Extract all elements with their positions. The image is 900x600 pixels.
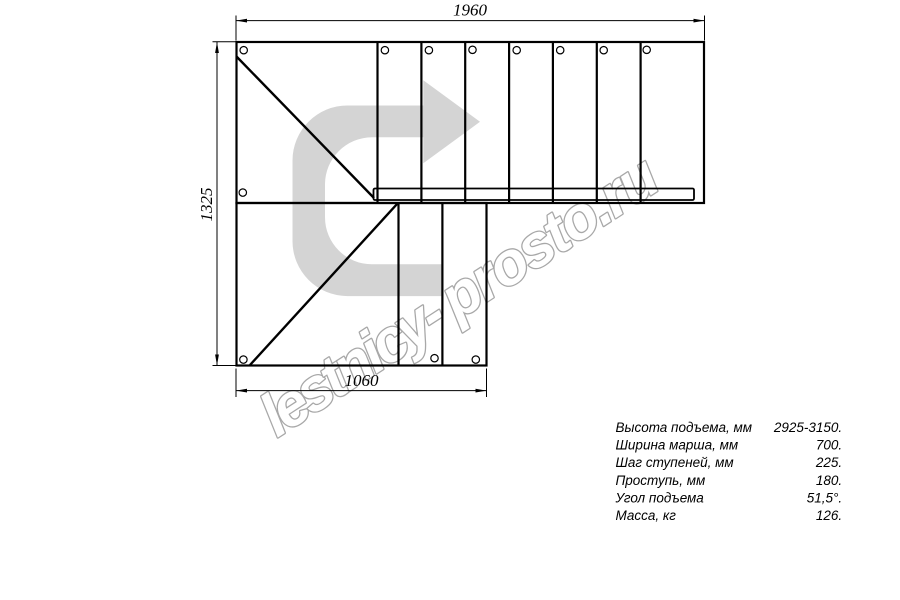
svg-text:Угол подъема: Угол подъема	[615, 490, 705, 505]
svg-text:Высота подъема, мм: Высота подъема, мм	[616, 420, 752, 435]
svg-text:Проступь, мм: Проступь, мм	[616, 473, 706, 488]
svg-text:1060: 1060	[345, 371, 380, 390]
svg-text:1960: 1960	[453, 1, 488, 20]
svg-text:1325: 1325	[197, 188, 216, 222]
svg-text:Шаг ступеней, мм: Шаг ступеней, мм	[616, 455, 734, 470]
svg-text:51,5°.: 51,5°.	[807, 490, 842, 505]
svg-text:Масса, кг: Масса, кг	[616, 508, 677, 523]
svg-text:126.: 126.	[816, 508, 842, 523]
svg-text:180.: 180.	[816, 473, 842, 488]
svg-text:2925-3150.: 2925-3150.	[773, 420, 842, 435]
svg-text:700.: 700.	[816, 438, 842, 453]
svg-text:Ширина марша, мм: Ширина марша, мм	[616, 438, 739, 453]
svg-text:225.: 225.	[815, 455, 842, 470]
